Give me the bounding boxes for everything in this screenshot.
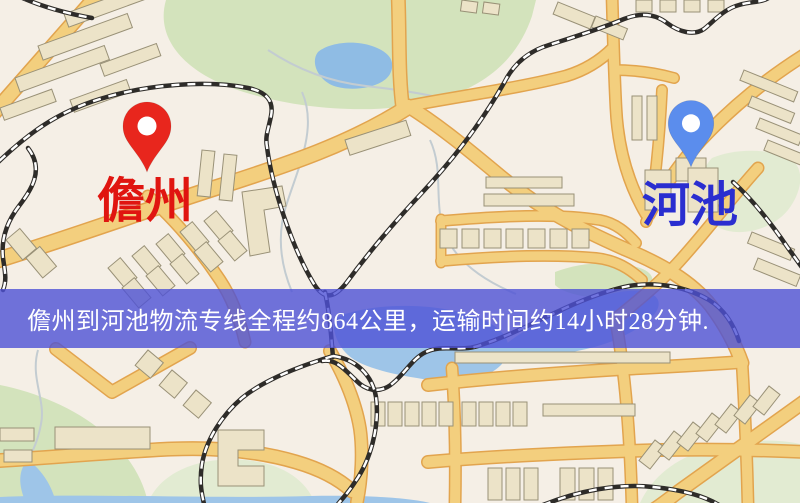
route-info-text: 儋州到河池物流专线全程约864公里，运输时间约14小时28分钟.: [27, 301, 709, 336]
route-info-banner: 儋州到河池物流专线全程约864公里，运输时间约14小时28分钟.: [0, 289, 800, 348]
map-view: 儋州 河池 儋州到河池物流专线全程约864公里，运输时间约14小时28分钟.: [0, 0, 800, 503]
map-canvas: 儋州 河池: [0, 0, 800, 503]
destination-city-label: 河池: [642, 179, 738, 232]
origin-city-label: 儋州: [97, 175, 193, 228]
